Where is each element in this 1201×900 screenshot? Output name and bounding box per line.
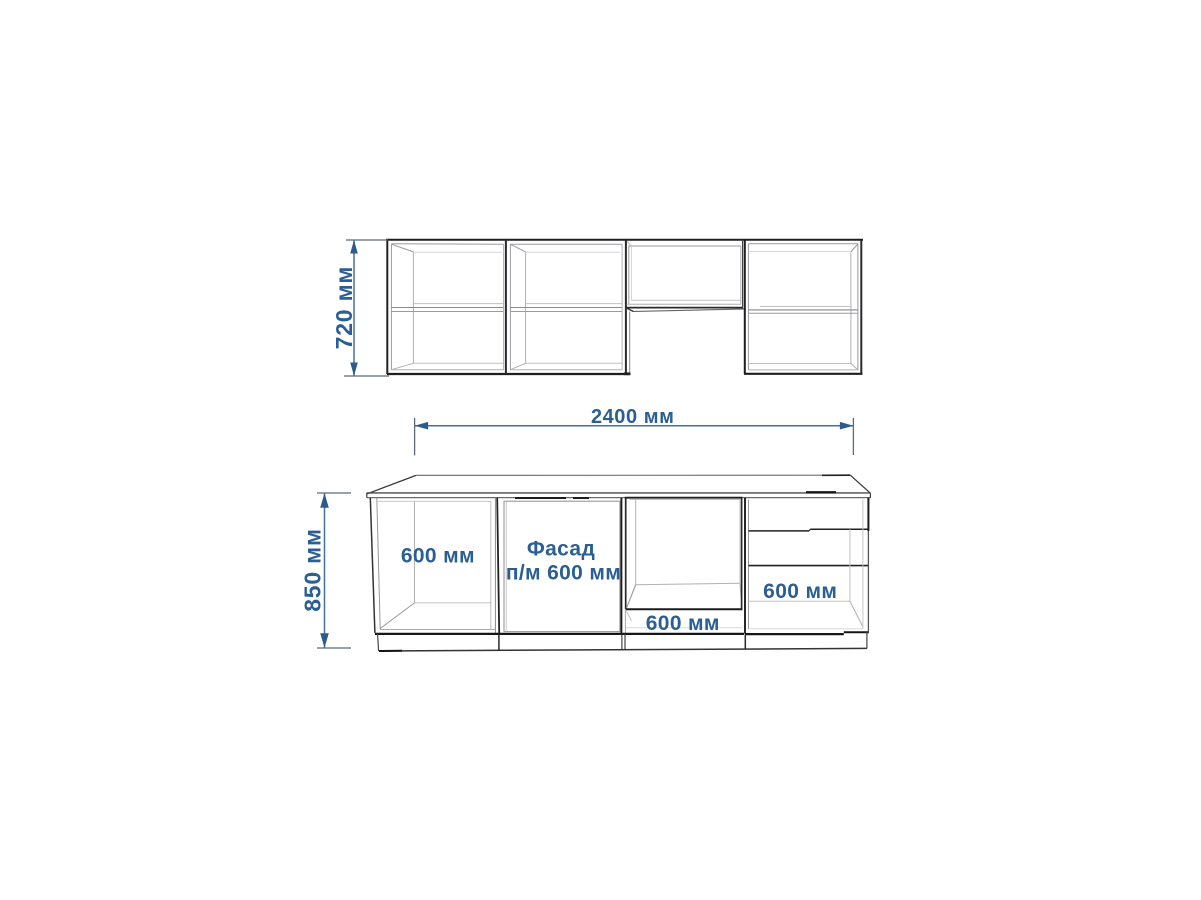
svg-text:2400 мм: 2400 мм	[591, 406, 675, 428]
svg-text:600 мм: 600 мм	[646, 612, 720, 635]
svg-text:850 мм: 850 мм	[300, 528, 326, 612]
svg-text:720 мм: 720 мм	[331, 266, 357, 350]
svg-text:п/м 600 мм: п/м 600 мм	[506, 562, 621, 585]
svg-text:600 мм: 600 мм	[401, 544, 475, 567]
svg-text:600 мм: 600 мм	[763, 580, 837, 603]
svg-text:Фасад: Фасад	[527, 538, 595, 561]
